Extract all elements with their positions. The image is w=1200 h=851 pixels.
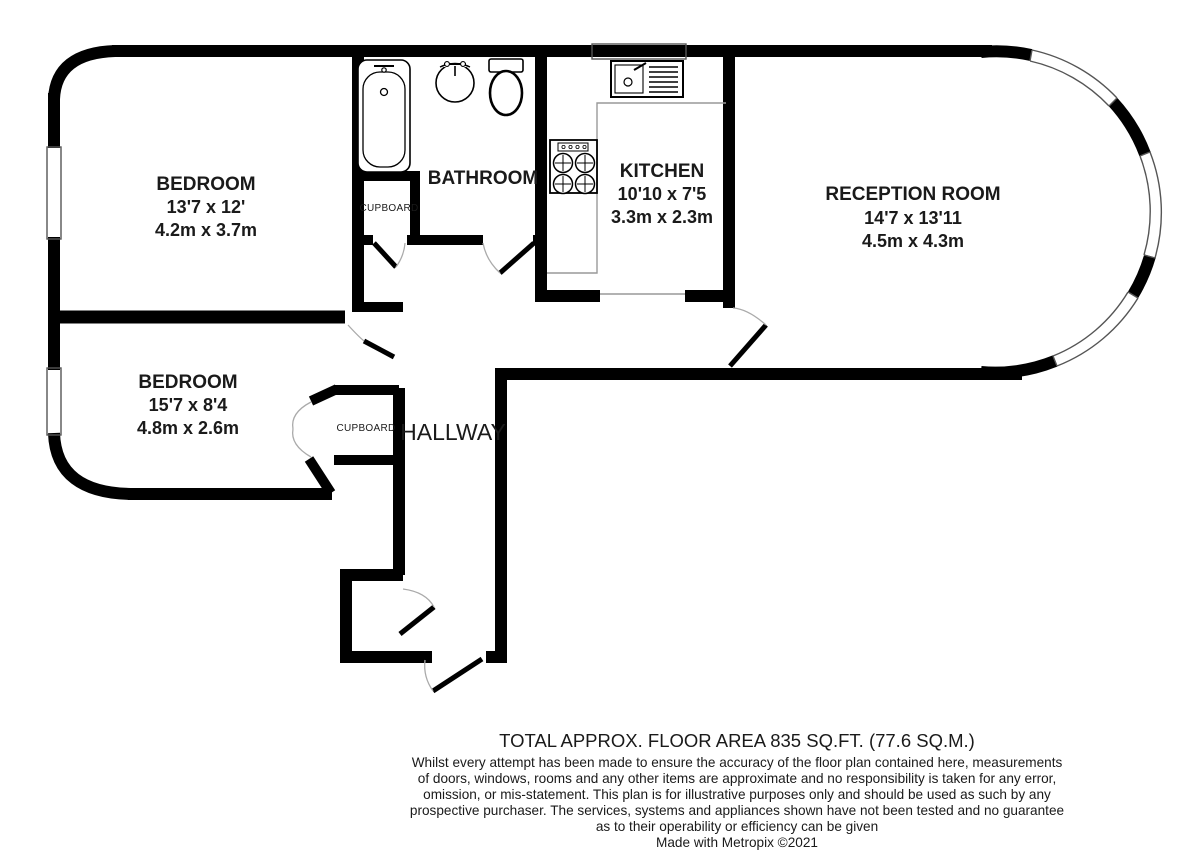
bathtub [358, 60, 410, 172]
label-bedroom2-metric: 4.8m x 2.6m [137, 418, 239, 438]
label-bedroom-cupboard: CUPBOARD [336, 423, 395, 434]
toilet [489, 59, 523, 115]
disclaimer-line: as to their operability or efficiency ca… [287, 819, 1187, 835]
floorplan-page: { "floorplan": { "rooms": [ {"id": "bedr… [0, 0, 1200, 850]
door-entrance [425, 659, 482, 691]
label-kitchen-name: KITCHEN [620, 161, 704, 182]
label-reception-name: RECEPTION ROOM [825, 184, 1000, 205]
wall-corner-bottom-left [54, 433, 134, 494]
label-bedroom1-imperial: 13'7 x 12' [167, 197, 246, 217]
wall-cupboard-chamfers [309, 389, 337, 493]
label-reception-imperial: 14'7 x 13'11 [864, 208, 962, 228]
label-bedroom1-metric: 4.2m x 3.7m [155, 220, 257, 240]
bay-window-1 [1030, 50, 1117, 106]
bay-window-3 [1053, 292, 1138, 366]
floor-plan-drawing: BEDROOM 13'7 x 12' 4.2m x 3.7m BATHROOM … [0, 0, 1200, 850]
label-bathroom-cupboard: CUPBOARD [359, 203, 418, 214]
door-bathroom [483, 243, 534, 273]
label-hallway: HALLWAY [400, 419, 506, 445]
label-bedroom2-imperial: 15'7 x 8'4 [149, 395, 228, 415]
label-kitchen-metric: 3.3m x 2.3m [611, 207, 713, 227]
door-bathroom-cupboard [374, 243, 405, 267]
window-bedroom1 [47, 147, 61, 239]
door-bifold-cupboard [293, 402, 311, 457]
door-reception [730, 308, 766, 366]
footer-text-block: TOTAL APPROX. FLOOR AREA 835 SQ.FT. (77.… [287, 730, 1187, 851]
room-labels: BEDROOM 13'7 x 12' 4.2m x 3.7m BATHROOM … [137, 161, 1001, 445]
hob [550, 140, 597, 194]
label-reception-metric: 4.5m x 4.3m [862, 231, 964, 251]
disclaimer-line: prospective purchaser. The services, sys… [287, 803, 1187, 819]
washbasin [436, 62, 474, 102]
bay-window-2 [1140, 152, 1161, 258]
label-kitchen-imperial: 10'10 x 7'5 [618, 184, 707, 204]
disclaimer-line: of doors, windows, rooms and any other i… [287, 771, 1187, 787]
bay-wall-4 [981, 361, 1055, 373]
window-bedroom2 [47, 368, 61, 435]
metropix-credit: Made with Metropix ©2021 [287, 835, 1187, 851]
door-bedroom2 [348, 325, 394, 357]
bay-wall-1 [981, 51, 1031, 55]
bay-wall-2 [1113, 102, 1145, 154]
kitchen-sink [611, 61, 683, 97]
disclaimer-line: omission, or mis-statement. This plan is… [287, 787, 1187, 803]
label-bedroom2-name: BEDROOM [138, 372, 237, 393]
label-bathroom-name: BATHROOM [428, 168, 538, 189]
reception-bay [981, 50, 1161, 373]
total-floor-area: TOTAL APPROX. FLOOR AREA 835 SQ.FT. (77.… [287, 730, 1187, 752]
door-store-room [400, 589, 434, 634]
label-bedroom1-name: BEDROOM [156, 174, 255, 195]
bay-wall-3 [1133, 256, 1150, 295]
disclaimer-line: Whilst every attempt has been made to en… [287, 755, 1187, 771]
wall-corner-top-left [54, 51, 115, 99]
